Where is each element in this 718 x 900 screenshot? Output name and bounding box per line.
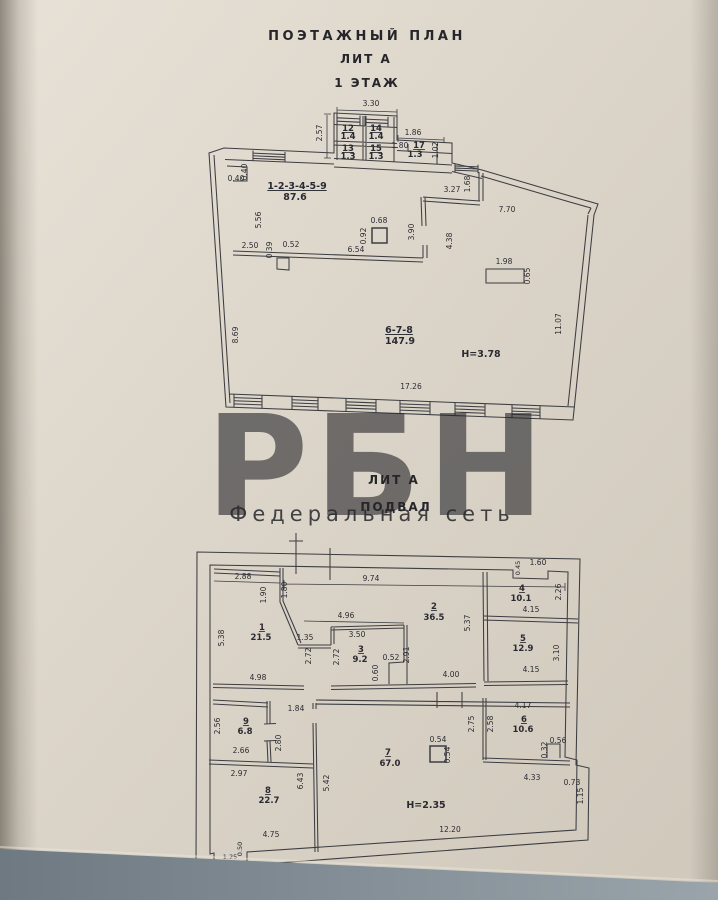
dim-label: 1.84 (288, 704, 305, 713)
room-label: 6.8 (237, 727, 252, 737)
section-title-line1: ЛИТ А (368, 473, 420, 487)
dim-label: 0.68 (371, 216, 388, 225)
dim-label: 0.54 (430, 735, 447, 744)
title-line3: 1 ЭТАЖ (334, 76, 400, 90)
section-title-line2: ПОДВАЛ (360, 500, 431, 514)
room-label: Н=2.35 (406, 800, 445, 811)
dim-label: 3.50 (349, 630, 366, 639)
dim-label: 0.32 (540, 741, 549, 758)
dim-label: 1.35 (297, 633, 314, 642)
room-label: 1 (259, 623, 265, 633)
dim-label: 5.42 (322, 774, 331, 791)
dim-label: 2.97 (231, 769, 248, 778)
dim-label: 0.52 (383, 653, 400, 662)
room-label: 3 (358, 645, 364, 655)
dim-label: 4.96 (338, 611, 355, 620)
dim-label: 1.80 (392, 141, 409, 150)
dim-label: 4.15 (523, 665, 540, 674)
room-label: 4 (519, 584, 525, 594)
room-label: 7 (385, 748, 391, 758)
room-label: 1.4 (340, 132, 355, 142)
dim-label: 1.15 (576, 787, 585, 804)
dim-label: 0.92 (359, 227, 368, 244)
dim-label: 11.07 (554, 313, 563, 335)
dim-label: 4.38 (445, 232, 454, 249)
dim-label: 0.45 (514, 561, 522, 575)
dim-label: 2.58 (486, 715, 495, 732)
dim-label: 12.20 (439, 825, 461, 834)
dim-label: 4.15 (523, 605, 540, 614)
dim-label: 1.98 (496, 257, 513, 266)
dim-label: 3.90 (407, 223, 416, 240)
room-label: 10.6 (513, 725, 534, 735)
room-label: 147.9 (385, 336, 415, 347)
left-edge-shadow (0, 0, 38, 900)
dim-label: 1.68 (463, 175, 472, 192)
room-label: 6 (521, 715, 527, 725)
room-label: 6-7-8 (385, 325, 413, 336)
dim-label: 1.80 (280, 581, 289, 598)
dim-label: 5.37 (463, 614, 472, 631)
dim-label: 0.39 (265, 241, 274, 258)
right-edge-shadow (690, 0, 718, 900)
room-label: 1.3 (340, 152, 355, 162)
room-label: Н=3.78 (461, 349, 501, 360)
dim-label: 0.54 (443, 746, 452, 763)
dim-label: 0.56 (550, 736, 567, 745)
dim-label: 2.66 (233, 746, 250, 755)
dim-label: 6.54 (348, 245, 365, 254)
dim-label: 2.72 (332, 648, 341, 665)
title-line1: ПОЭТАЖНЫЙ ПЛАН (268, 28, 466, 44)
dim-label: 1.02 (431, 141, 440, 158)
dim-label: 4.33 (524, 773, 541, 782)
room-label: 21.5 (251, 633, 272, 643)
room-label: 1.3 (407, 150, 422, 160)
dim-label: 4.00 (443, 670, 460, 679)
title-line2: ЛИТ А (340, 52, 392, 66)
room-label: 1.4 (368, 132, 383, 142)
dim-label: 4.98 (250, 673, 267, 682)
dim-label: 5.38 (217, 629, 226, 646)
dim-label: 2.91 (402, 646, 411, 663)
room-label: 9.2 (352, 655, 367, 665)
dim-label: 3.27 (444, 185, 461, 194)
dim-label: 3.10 (552, 644, 561, 661)
dim-label: 8.69 (231, 326, 240, 343)
room-label: 9 (243, 717, 249, 727)
dim-label: 0.50 (236, 842, 244, 856)
room-label: 36.5 (424, 613, 445, 623)
room-label: 87.6 (283, 192, 307, 203)
dim-label: 0.73 (564, 778, 581, 787)
dim-label: 2.88 (235, 572, 252, 581)
watermark: РБН Федеральная сеть (206, 386, 550, 549)
dim-label: 0.60 (371, 664, 380, 681)
room-label: 5 (520, 634, 526, 644)
dim-label: 2.72 (304, 647, 313, 664)
room-label: 2 (431, 602, 437, 612)
room-label: 10.1 (511, 594, 532, 604)
room-label: 12.9 (513, 644, 534, 654)
dim-label: 2.50 (242, 241, 259, 250)
room-label: 22.7 (259, 796, 280, 806)
dim-label: 4.17 (515, 701, 532, 710)
dim-label: 6.43 (296, 772, 305, 789)
dim-label: 5.56 (254, 211, 263, 228)
dim-label: 0.40 (228, 174, 245, 183)
room-label: 1.3 (368, 152, 383, 162)
dim-label: 1.60 (530, 558, 547, 567)
dim-label: 0.52 (283, 240, 300, 249)
dim-label: 2.57 (315, 124, 324, 141)
dim-label: 1.86 (405, 128, 422, 137)
dim-label: 7.70 (499, 205, 516, 214)
room-label: 67.0 (380, 759, 401, 769)
dim-label: 9.74 (363, 574, 380, 583)
dim-label: 1.90 (259, 586, 268, 603)
dim-label: 4.75 (263, 830, 280, 839)
room-label: 8 (265, 786, 271, 796)
dim-label: 2.26 (554, 583, 563, 600)
scan-photo: ПОЭТАЖНЫЙ ПЛАН ЛИТ А 1 ЭТАЖ 3.302.57121.… (0, 0, 718, 900)
scanned-floorplan-page: ПОЭТАЖНЫЙ ПЛАН ЛИТ А 1 ЭТАЖ 3.302.57121.… (0, 0, 718, 900)
room-label: 1-2-3-4-5-9 (267, 181, 326, 192)
dim-label: 2.75 (467, 715, 476, 732)
dim-label: 0.65 (523, 267, 532, 284)
dim-label: 2.56 (213, 717, 222, 734)
dim-label: 2.80 (274, 734, 283, 751)
dim-label: 3.30 (363, 99, 380, 108)
